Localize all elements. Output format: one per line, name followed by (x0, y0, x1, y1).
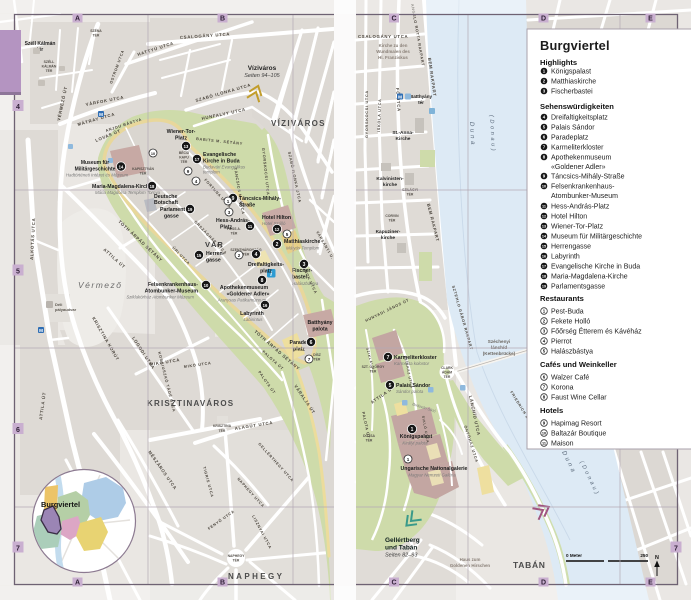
svg-text:4: 4 (255, 252, 258, 258)
svg-text:D: D (541, 16, 546, 23)
svg-text:Gellértberg: Gellértberg (385, 537, 420, 544)
svg-text:17: 17 (195, 157, 200, 162)
svg-text:7: 7 (308, 357, 311, 362)
svg-text:10: 10 (542, 431, 546, 435)
svg-text:Víziváros: Víziváros (248, 65, 277, 72)
svg-text:Duna: Duna (468, 122, 476, 148)
svg-text:M: M (99, 112, 103, 117)
svg-text:15: 15 (197, 253, 202, 258)
svg-text:Walzer Café: Walzer Café (551, 375, 589, 382)
svg-text:TÉR: TÉR (314, 357, 321, 362)
svg-text:Cafés und Weinkeller: Cafés und Weinkeller (540, 360, 617, 369)
svg-text:«Goldener Adler»: «Goldener Adler» (551, 164, 606, 171)
svg-text:6: 6 (16, 427, 20, 434)
svg-text:TÉR: TÉR (231, 231, 238, 236)
svg-text:Királyi palota: Királyi palota (402, 441, 428, 446)
svg-text:3: 3 (303, 262, 306, 268)
svg-text:7: 7 (674, 546, 678, 553)
svg-text:Platz: Platz (220, 225, 233, 231)
svg-text:Halászbástya: Halászbástya (551, 349, 593, 356)
svg-text:B: B (220, 580, 225, 587)
svg-text:Aranysas Patikamúzeum: Aranysas Patikamúzeum (217, 298, 267, 303)
svg-text:Goldenen Hirschen: Goldenen Hirschen (450, 563, 491, 568)
svg-text:Platz: Platz (175, 136, 188, 142)
svg-text:A: A (75, 580, 80, 587)
svg-text:C: C (391, 16, 396, 23)
svg-text:Paradeplatz: Paradeplatz (551, 135, 589, 142)
svg-text:Matthiaskirche: Matthiaskirche (284, 239, 320, 245)
svg-text:17: 17 (542, 264, 546, 268)
svg-text:5: 5 (16, 269, 20, 276)
svg-text:Dreifaltigkeitsplatz: Dreifaltigkeitsplatz (551, 115, 608, 122)
svg-text:Museum für Militärgeschichte: Museum für Militärgeschichte (551, 234, 642, 241)
svg-text:M: M (39, 328, 43, 333)
svg-text:5: 5 (286, 232, 289, 237)
svg-text:7: 7 (387, 355, 390, 361)
svg-text:VÍZIVÁROS: VÍZIVÁROS (271, 119, 326, 128)
svg-text:6: 6 (310, 340, 313, 346)
svg-text:pályaudvar: pályaudvar (55, 307, 77, 312)
svg-text:gasse: gasse (206, 258, 221, 264)
svg-text:Táncsics-Mihály-Straße: Táncsics-Mihály-Straße (551, 174, 625, 181)
svg-text:10: 10 (204, 283, 209, 288)
svg-text:Wiener-Tor-: Wiener-Tor- (167, 129, 196, 135)
svg-text:Vérmező: Vérmező (78, 280, 123, 290)
svg-text:8: 8 (261, 278, 264, 284)
svg-text:19: 19 (188, 207, 193, 212)
svg-text:B: B (220, 16, 225, 23)
svg-text:TÉR: TÉR (46, 68, 53, 73)
svg-text:Hess-András-: Hess-András- (216, 218, 250, 224)
svg-text:Apothekenmuseum: Apothekenmuseum (551, 155, 611, 162)
svg-text:lánchíd: lánchíd (491, 345, 507, 350)
svg-text:CSALOGÁNY UTCA: CSALOGÁNY UTCA (358, 34, 408, 39)
svg-text:gasse: gasse (164, 214, 179, 220)
svg-text:Felsenkrankenhaus-: Felsenkrankenhaus- (551, 184, 615, 191)
svg-text:TÉR: TÉR (444, 374, 451, 379)
svg-text:10: 10 (151, 152, 155, 156)
svg-text:DÍSZ: DÍSZ (313, 352, 321, 357)
svg-text:Hotel Hilton: Hotel Hilton (551, 214, 587, 221)
svg-text:Fischerbastei: Fischerbastei (551, 89, 593, 96)
svg-text:Mátyás Templom: Mátyás Templom (286, 246, 320, 251)
svg-text:Táncsics-Mihály-: Táncsics-Mihály- (239, 196, 281, 202)
svg-text:Kalvinisten-: Kalvinisten- (376, 176, 404, 182)
svg-text:NAPHEGY: NAPHEGY (228, 554, 246, 558)
svg-text:N: N (655, 555, 659, 561)
svg-text:SZT. GYÖRGY: SZT. GYÖRGY (362, 364, 386, 369)
svg-text:Karmeliterkloster: Karmeliterkloster (551, 145, 604, 152)
svg-text:TÉR: TÉR (233, 558, 240, 563)
svg-text:kirche: kirche (381, 235, 395, 241)
svg-text:kirche: kirche (383, 182, 397, 188)
svg-text:Batthyány: Batthyány (307, 320, 332, 326)
svg-text:Karmelita kolostor: Karmelita kolostor (394, 361, 430, 366)
svg-text:Hotels: Hotels (540, 406, 563, 415)
svg-text:Fekete Holló: Fekete Holló (551, 319, 590, 326)
svg-text:templom: templom (203, 170, 220, 175)
svg-text:KRISZTINAVÁROS: KRISZTINAVÁROS (147, 399, 234, 408)
svg-text:KRISZTINA: KRISZTINA (213, 424, 232, 428)
svg-text:1: 1 (407, 457, 410, 462)
svg-text:Atombunker-Museum: Atombunker-Museum (551, 193, 618, 200)
svg-text:bastei: bastei (292, 275, 308, 281)
svg-text:Kirche zu den: Kirche zu den (379, 43, 408, 48)
svg-text:(Kettenbrücke): (Kettenbrücke) (483, 351, 516, 356)
svg-text:Baltazár Boutique: Baltazár Boutique (551, 431, 606, 438)
svg-text:TABÁN: TABÁN (513, 560, 546, 570)
svg-text:Korona: Korona (551, 385, 574, 392)
svg-text:TÉR: TÉR (370, 369, 377, 374)
svg-text:2: 2 (276, 242, 279, 248)
svg-text:Pest-Buda: Pest-Buda (551, 309, 584, 316)
svg-text:BÉCSI: BÉCSI (179, 150, 189, 155)
svg-text:Hess-András-Platz: Hess-András-Platz (551, 204, 610, 211)
svg-text:A: A (75, 16, 80, 23)
svg-text:Főőrség Étterem és Kávéház: Főőrség Étterem és Kávéház (551, 327, 642, 336)
svg-text:19: 19 (542, 284, 546, 288)
svg-text:TÉR: TÉR (389, 218, 396, 223)
svg-text:Museum für: Museum für (81, 160, 109, 166)
svg-text:Batthyány: Batthyány (410, 94, 433, 99)
svg-text:2: 2 (238, 253, 241, 258)
svg-text:Herrengasse: Herrengasse (551, 244, 591, 251)
svg-text:TÉR: TÉR (366, 438, 373, 443)
svg-text:250: 250 (640, 553, 648, 558)
svg-text:Parlamentsgasse: Parlamentsgasse (551, 284, 605, 291)
svg-text:SZÉNA: SZÉNA (90, 28, 102, 33)
svg-text:16: 16 (263, 303, 268, 308)
svg-text:Sándor palota: Sándor palota (396, 389, 424, 394)
svg-text:14: 14 (119, 165, 124, 170)
svg-text:Wundmalen des: Wundmalen des (376, 49, 410, 54)
svg-text:3: 3 (228, 210, 231, 215)
svg-text:Herren-: Herren- (206, 251, 225, 257)
svg-text:C: C (391, 580, 396, 587)
svg-text:Fischer-: Fischer- (292, 268, 312, 274)
svg-text:TÉR: TÉR (407, 192, 414, 197)
svg-text:palota: palota (312, 327, 327, 333)
svg-text:E: E (648, 580, 653, 587)
svg-text:platz: platz (260, 269, 272, 275)
svg-text:KAPU: KAPU (179, 156, 189, 160)
svg-text:5: 5 (389, 383, 392, 389)
svg-text:Palais Sándor: Palais Sándor (551, 125, 595, 132)
svg-text:1: 1 (411, 427, 414, 433)
svg-text:Parade-: Parade- (289, 340, 308, 346)
svg-text:Evangelische Kirche in Buda: Evangelische Kirche in Buda (551, 264, 640, 271)
svg-text:4: 4 (16, 104, 20, 111)
svg-text:Burgviertel: Burgviertel (41, 500, 80, 509)
svg-text:Ungarische Nationalgalerie: Ungarische Nationalgalerie (401, 466, 468, 472)
svg-text:Apothekenmuseum: Apothekenmuseum (220, 285, 269, 291)
svg-text:11: 11 (542, 204, 546, 208)
svg-text:Sziklakórház Atombunker Múzeum: Sziklakórház Atombunker Múzeum (126, 295, 194, 300)
svg-text:15: 15 (542, 244, 546, 248)
svg-text:Sehenswürdigkeiten: Sehenswürdigkeiten (540, 102, 614, 111)
svg-text:Dreifaltigkeits-: Dreifaltigkeits- (248, 262, 284, 268)
svg-text:Faust Wine Cellar: Faust Wine Cellar (551, 395, 607, 402)
svg-text:TÉR: TÉR (93, 33, 100, 38)
svg-text:Wiener-Tor-Platz: Wiener-Tor-Platz (551, 224, 604, 231)
svg-text:Pierrot: Pierrot (551, 339, 572, 346)
svg-text:M: M (398, 95, 402, 100)
svg-text:Botschaft: Botschaft (154, 200, 178, 206)
svg-text:7: 7 (16, 546, 20, 553)
svg-text:D: D (541, 580, 546, 587)
svg-text:13: 13 (184, 144, 189, 149)
svg-text:GYORSKOCSI UTCA: GYORSKOCSI UTCA (365, 90, 369, 138)
svg-text:KAPISZTRÁN: KAPISZTRÁN (132, 166, 154, 171)
svg-text:NAPHEGY: NAPHEGY (228, 572, 284, 581)
svg-text:und Tabán: und Tabán (385, 545, 417, 552)
svg-text:TÉR: TÉR (181, 159, 188, 164)
svg-text:Halászbástya: Halászbástya (292, 281, 319, 286)
svg-text:18: 18 (150, 184, 155, 189)
svg-text:13: 13 (542, 224, 546, 228)
svg-text:Seiten 94–105: Seiten 94–105 (244, 73, 280, 79)
svg-text:Haus zum: Haus zum (460, 557, 481, 562)
svg-text:Highlights: Highlights (540, 58, 577, 67)
svg-text:platz: platz (293, 347, 305, 353)
svg-text:DÓZSA: DÓZSA (363, 433, 375, 438)
svg-text:18: 18 (542, 274, 546, 278)
svg-text:Königspalast: Königspalast (551, 69, 591, 76)
svg-text:KÁLMÁN: KÁLMÁN (42, 64, 57, 69)
svg-text:Felsenkrankenhaus-: Felsenkrankenhaus- (148, 282, 198, 288)
svg-text:11: 11 (248, 224, 253, 229)
svg-text:Hapimag Resort: Hapimag Resort (551, 421, 602, 428)
svg-text:Hl. Franziskus: Hl. Franziskus (378, 55, 408, 60)
svg-text:Matthiaskirche: Matthiaskirche (551, 79, 596, 86)
svg-text:CLARK: CLARK (441, 366, 453, 370)
svg-text:Labirintus: Labirintus (243, 317, 263, 322)
svg-text:Széchenyi: Széchenyi (488, 339, 510, 344)
svg-text:Seiten 82–93: Seiten 82–93 (385, 553, 418, 559)
svg-text:10: 10 (542, 184, 546, 188)
svg-text:Burgviertel: Burgviertel (540, 38, 610, 53)
svg-text:Königspalast: Königspalast (400, 434, 433, 440)
svg-text:Hadtörténeti Intézet és Múzeum: Hadtörténeti Intézet és Múzeum (66, 173, 129, 178)
svg-text:TÉR: TÉR (219, 428, 226, 433)
svg-text:Kapuziner-: Kapuziner- (376, 229, 401, 235)
svg-text:11: 11 (542, 441, 546, 445)
svg-text:SZILÁGYI: SZILÁGYI (402, 187, 418, 192)
svg-text:16: 16 (542, 254, 546, 258)
svg-text:Evangelische: Evangelische (203, 152, 236, 158)
svg-text:TÉR: TÉR (243, 252, 250, 257)
svg-text:CORVIN: CORVIN (385, 214, 399, 218)
svg-text:12: 12 (275, 227, 280, 232)
svg-text:Magyar Nemzeti Galéria: Magyar Nemzeti Galéria (408, 473, 456, 478)
svg-text:ÁDÁM: ÁDÁM (442, 370, 452, 375)
svg-text:Restaurants: Restaurants (540, 294, 584, 303)
svg-text:Straße: Straße (239, 203, 255, 209)
svg-text:9: 9 (187, 169, 190, 174)
svg-text:Labyrinth: Labyrinth (551, 254, 580, 261)
svg-text:12: 12 (542, 214, 546, 218)
svg-text:tér: tér (418, 100, 424, 105)
svg-text:TÉR: TÉR (140, 171, 147, 176)
svg-text:4: 4 (195, 179, 198, 184)
svg-text:1: 1 (227, 199, 230, 204)
svg-text:Maison: Maison (551, 441, 574, 448)
svg-text:0 Meter: 0 Meter (566, 553, 582, 558)
svg-text:Kirche: Kirche (396, 136, 411, 142)
svg-text:SZÉLL: SZÉLL (44, 59, 55, 64)
svg-text:Maria-Magdalena-Kirche: Maria-Magdalena-Kirche (551, 274, 628, 281)
svg-text:E: E (648, 16, 653, 23)
svg-text:St.-Anna-: St.-Anna- (392, 130, 414, 136)
